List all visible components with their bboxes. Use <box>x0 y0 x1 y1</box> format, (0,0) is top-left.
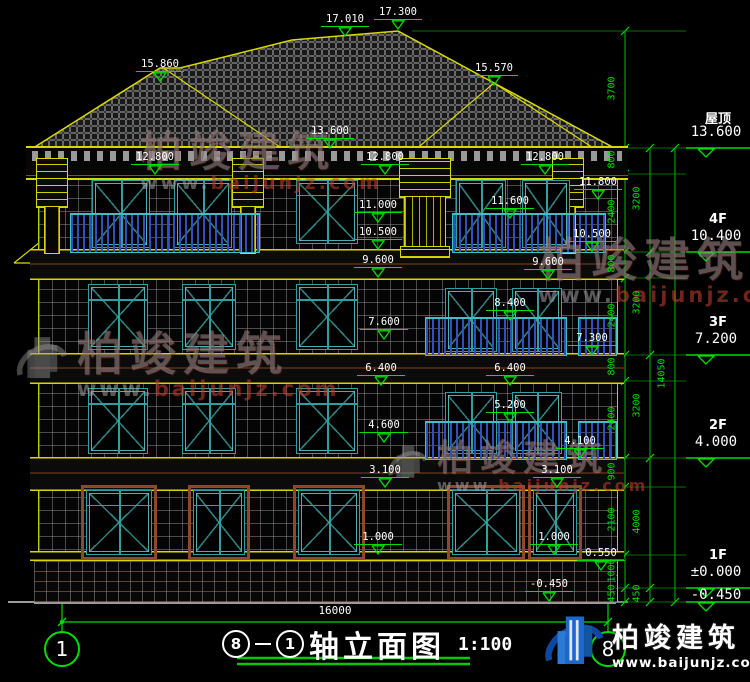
window <box>296 180 358 244</box>
dimension-value: 2400 <box>607 396 618 440</box>
balcony-railing <box>425 421 567 460</box>
balcony-railing <box>425 317 567 356</box>
elevation-marker: 15.860 <box>136 58 184 82</box>
title-axis-end-bubble: 1 <box>276 630 304 658</box>
storey-level-value: 7.200 <box>684 331 748 347</box>
elevation-marker: 7.600 <box>360 316 408 340</box>
pilaster-shaft <box>44 206 60 254</box>
elevation-marker: 12.800 <box>521 151 569 175</box>
storey-level-value: 4.000 <box>684 434 748 450</box>
storey-label: 2F <box>688 418 748 433</box>
dimension-value: 2400 <box>607 190 618 234</box>
level-triangle-icon <box>537 165 553 175</box>
storey-label: 1F <box>688 548 748 563</box>
elevation-marker: 12.800 <box>131 151 179 175</box>
level-triangle-icon <box>584 346 600 356</box>
level-triangle-icon <box>376 330 392 340</box>
level-triangle-icon <box>541 592 557 602</box>
title-axis-start-bubble: 8 <box>222 630 250 658</box>
dimension-value: 14050 <box>657 352 668 396</box>
level-triangle-icon <box>370 545 386 555</box>
window <box>86 490 152 555</box>
dimension-value: 800 <box>607 345 618 389</box>
elevation-marker: 1.000 <box>530 531 578 555</box>
bay-column-base <box>400 246 450 258</box>
title-dash <box>255 643 271 646</box>
brand-url: www.baijunjz.com <box>612 655 750 671</box>
window <box>296 284 358 350</box>
title-scale: 1:100 <box>458 634 512 655</box>
level-triangle-icon <box>572 449 588 459</box>
level-triangle-icon <box>337 27 353 37</box>
level-triangle-icon <box>370 213 386 223</box>
dimension-value: 2100 <box>607 498 618 542</box>
window <box>452 490 520 555</box>
elevation-marker: 6.400 <box>486 362 534 386</box>
elevation-marker: 9.600 <box>354 254 402 278</box>
level-triangle-icon <box>549 478 565 488</box>
level-triangle-icon <box>152 72 168 82</box>
brand-logo: 柏竣建筑 www.baijunjz.com <box>542 608 750 678</box>
elevation-marker: 13.600 <box>306 125 354 149</box>
window <box>182 388 236 454</box>
dimension-value: 3200 <box>632 280 643 324</box>
pilaster-capital <box>232 158 264 208</box>
level-triangle-icon <box>322 139 338 149</box>
dimension-value: 3200 <box>632 383 643 427</box>
window <box>298 490 360 555</box>
level-triangle-icon <box>390 20 406 30</box>
level-triangle-icon <box>584 242 600 252</box>
elevation-marker: 11.600 <box>486 195 534 219</box>
elevation-marker: 5.200 <box>486 399 534 423</box>
level-triangle-icon <box>370 268 386 278</box>
storey-level-value: ±0.000 <box>684 564 748 580</box>
dimension-value: 800 <box>607 138 618 182</box>
storey-level-value: -0.450 <box>684 587 748 603</box>
pilaster-capital <box>36 158 68 208</box>
level-triangle-icon <box>376 433 392 443</box>
elevation-marker: 3.100 <box>361 464 409 488</box>
floor-slab-band-3f <box>30 353 624 384</box>
elevation-marker: 12.800 <box>361 151 409 175</box>
storey-level-value: 10.400 <box>684 228 748 244</box>
dimension-value: 4000 <box>632 500 643 544</box>
elevation-marker: 9.600 <box>524 256 572 280</box>
dimension-value: 900 <box>607 449 618 493</box>
level-triangle-icon <box>486 76 502 86</box>
level-triangle-icon <box>502 209 518 219</box>
level-triangle-icon <box>502 413 518 423</box>
window <box>88 284 148 350</box>
level-triangle-icon <box>590 190 606 200</box>
level-triangle-icon <box>377 478 393 488</box>
elevation-marker: 4.600 <box>360 419 408 443</box>
level-triangle-icon <box>370 240 386 250</box>
drawing-title: 8 1 轴立面图 1:100 <box>222 622 512 666</box>
dimension-value: 800 <box>607 242 618 286</box>
level-triangle-icon <box>502 311 518 321</box>
level-triangle-icon <box>502 376 518 386</box>
storey-label: 3F <box>688 315 748 330</box>
dimension-value: 3700 <box>607 66 618 110</box>
axis-bubble-left-label: 1 <box>50 637 74 661</box>
overall-width-dimension: 16000 <box>300 604 370 617</box>
level-triangle-icon <box>546 545 562 555</box>
elevation-marker: 4.100 <box>556 435 604 459</box>
storey-label: 4F <box>688 212 748 227</box>
elevation-marker: 17.010 <box>321 13 369 37</box>
storey-level-value: 13.600 <box>684 124 748 140</box>
elevation-marker: 15.570 <box>470 62 518 86</box>
window <box>296 388 358 454</box>
level-triangle-icon <box>540 270 556 280</box>
level-triangle-icon <box>147 165 163 175</box>
elevation-marker: -0.450 <box>525 578 573 602</box>
dimension-value: 2400 <box>607 293 618 337</box>
balcony-railing <box>70 213 260 253</box>
elevation-marker: 6.400 <box>357 362 405 386</box>
title-text: 轴立面图 <box>309 622 445 666</box>
elevation-marker: 11.000 <box>354 199 402 223</box>
window <box>182 284 236 350</box>
elevation-marker: 1.000 <box>354 531 402 555</box>
elevation-marker: 10.500 <box>354 226 402 250</box>
elevation-marker: 17.300 <box>374 6 422 30</box>
bay-column-shaft <box>404 196 446 248</box>
window <box>193 490 245 555</box>
brand-logo-icon <box>542 608 606 678</box>
cad-elevation-drawing: 16000 1 8 8 1 轴立面图 1:100 柏竣建筑 www.baijun… <box>0 0 750 682</box>
elevation-marker: 3.100 <box>533 464 581 488</box>
level-triangle-icon <box>373 376 389 386</box>
level-triangle-icon <box>377 165 393 175</box>
brand-name: 柏竣建筑 <box>612 616 750 655</box>
elevation-marker: 0.550 <box>577 547 625 571</box>
window <box>88 388 148 454</box>
elevation-marker: 8.400 <box>486 297 534 321</box>
dimension-value: 3200 <box>632 177 643 221</box>
